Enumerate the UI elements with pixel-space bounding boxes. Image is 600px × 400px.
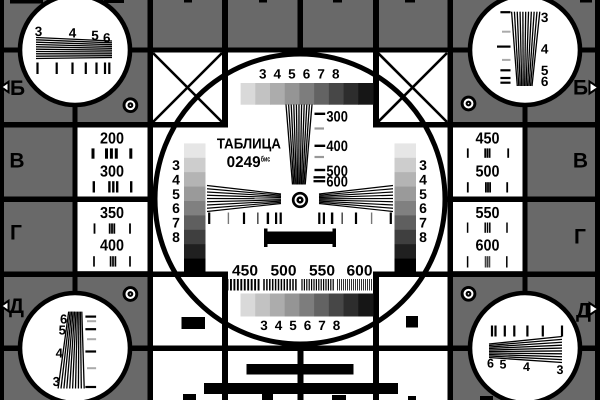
- svg-text:Г: Г: [10, 222, 22, 245]
- svg-text:4: 4: [274, 67, 282, 82]
- svg-text:8: 8: [419, 229, 427, 245]
- svg-text:ТАБЛИЦА: ТАБЛИЦА: [217, 137, 281, 153]
- svg-text:550: 550: [476, 205, 500, 222]
- svg-text:4: 4: [56, 346, 64, 361]
- svg-text:4: 4: [275, 318, 283, 333]
- svg-text:4: 4: [541, 41, 549, 56]
- svg-text:450: 450: [476, 131, 500, 148]
- svg-text:В: В: [9, 150, 24, 173]
- svg-text:6: 6: [304, 318, 312, 333]
- svg-text:3: 3: [541, 10, 549, 25]
- svg-text:8: 8: [172, 229, 180, 245]
- svg-text:5: 5: [500, 358, 507, 372]
- svg-text:550: 550: [309, 263, 335, 280]
- svg-text:8: 8: [333, 318, 341, 333]
- svg-text:В: В: [573, 150, 588, 173]
- svg-text:6: 6: [303, 67, 311, 82]
- svg-text:6: 6: [487, 357, 494, 371]
- svg-text:Б: Б: [573, 77, 588, 100]
- svg-text:5: 5: [289, 318, 297, 333]
- svg-text:7: 7: [318, 318, 326, 333]
- svg-text:200: 200: [100, 131, 124, 148]
- svg-text:3: 3: [35, 24, 43, 39]
- svg-text:3: 3: [53, 374, 60, 389]
- svg-text:Г: Г: [574, 226, 586, 249]
- svg-text:450: 450: [232, 263, 258, 280]
- svg-text:3: 3: [259, 67, 267, 82]
- svg-text:300: 300: [326, 108, 348, 125]
- svg-text:3: 3: [260, 318, 268, 333]
- svg-text:500: 500: [476, 164, 500, 181]
- svg-text:7: 7: [317, 67, 325, 82]
- svg-text:Б: Б: [10, 77, 25, 100]
- svg-text:5: 5: [288, 67, 296, 82]
- svg-text:4: 4: [523, 360, 530, 374]
- svg-text:400: 400: [100, 238, 124, 255]
- svg-text:4: 4: [69, 26, 77, 41]
- svg-text:8: 8: [332, 67, 340, 82]
- svg-text:бис: бис: [261, 154, 271, 163]
- svg-text:400: 400: [326, 138, 348, 155]
- svg-text:0249: 0249: [227, 154, 261, 171]
- svg-text:600: 600: [347, 263, 373, 280]
- svg-text:Д: Д: [9, 295, 24, 318]
- svg-text:6: 6: [541, 74, 549, 89]
- svg-text:600: 600: [476, 238, 500, 255]
- svg-text:600: 600: [326, 174, 348, 191]
- svg-text:5: 5: [59, 323, 66, 338]
- svg-text:350: 350: [100, 205, 124, 222]
- svg-text:500: 500: [271, 263, 297, 280]
- svg-text:3: 3: [557, 363, 564, 377]
- svg-text:300: 300: [100, 164, 124, 181]
